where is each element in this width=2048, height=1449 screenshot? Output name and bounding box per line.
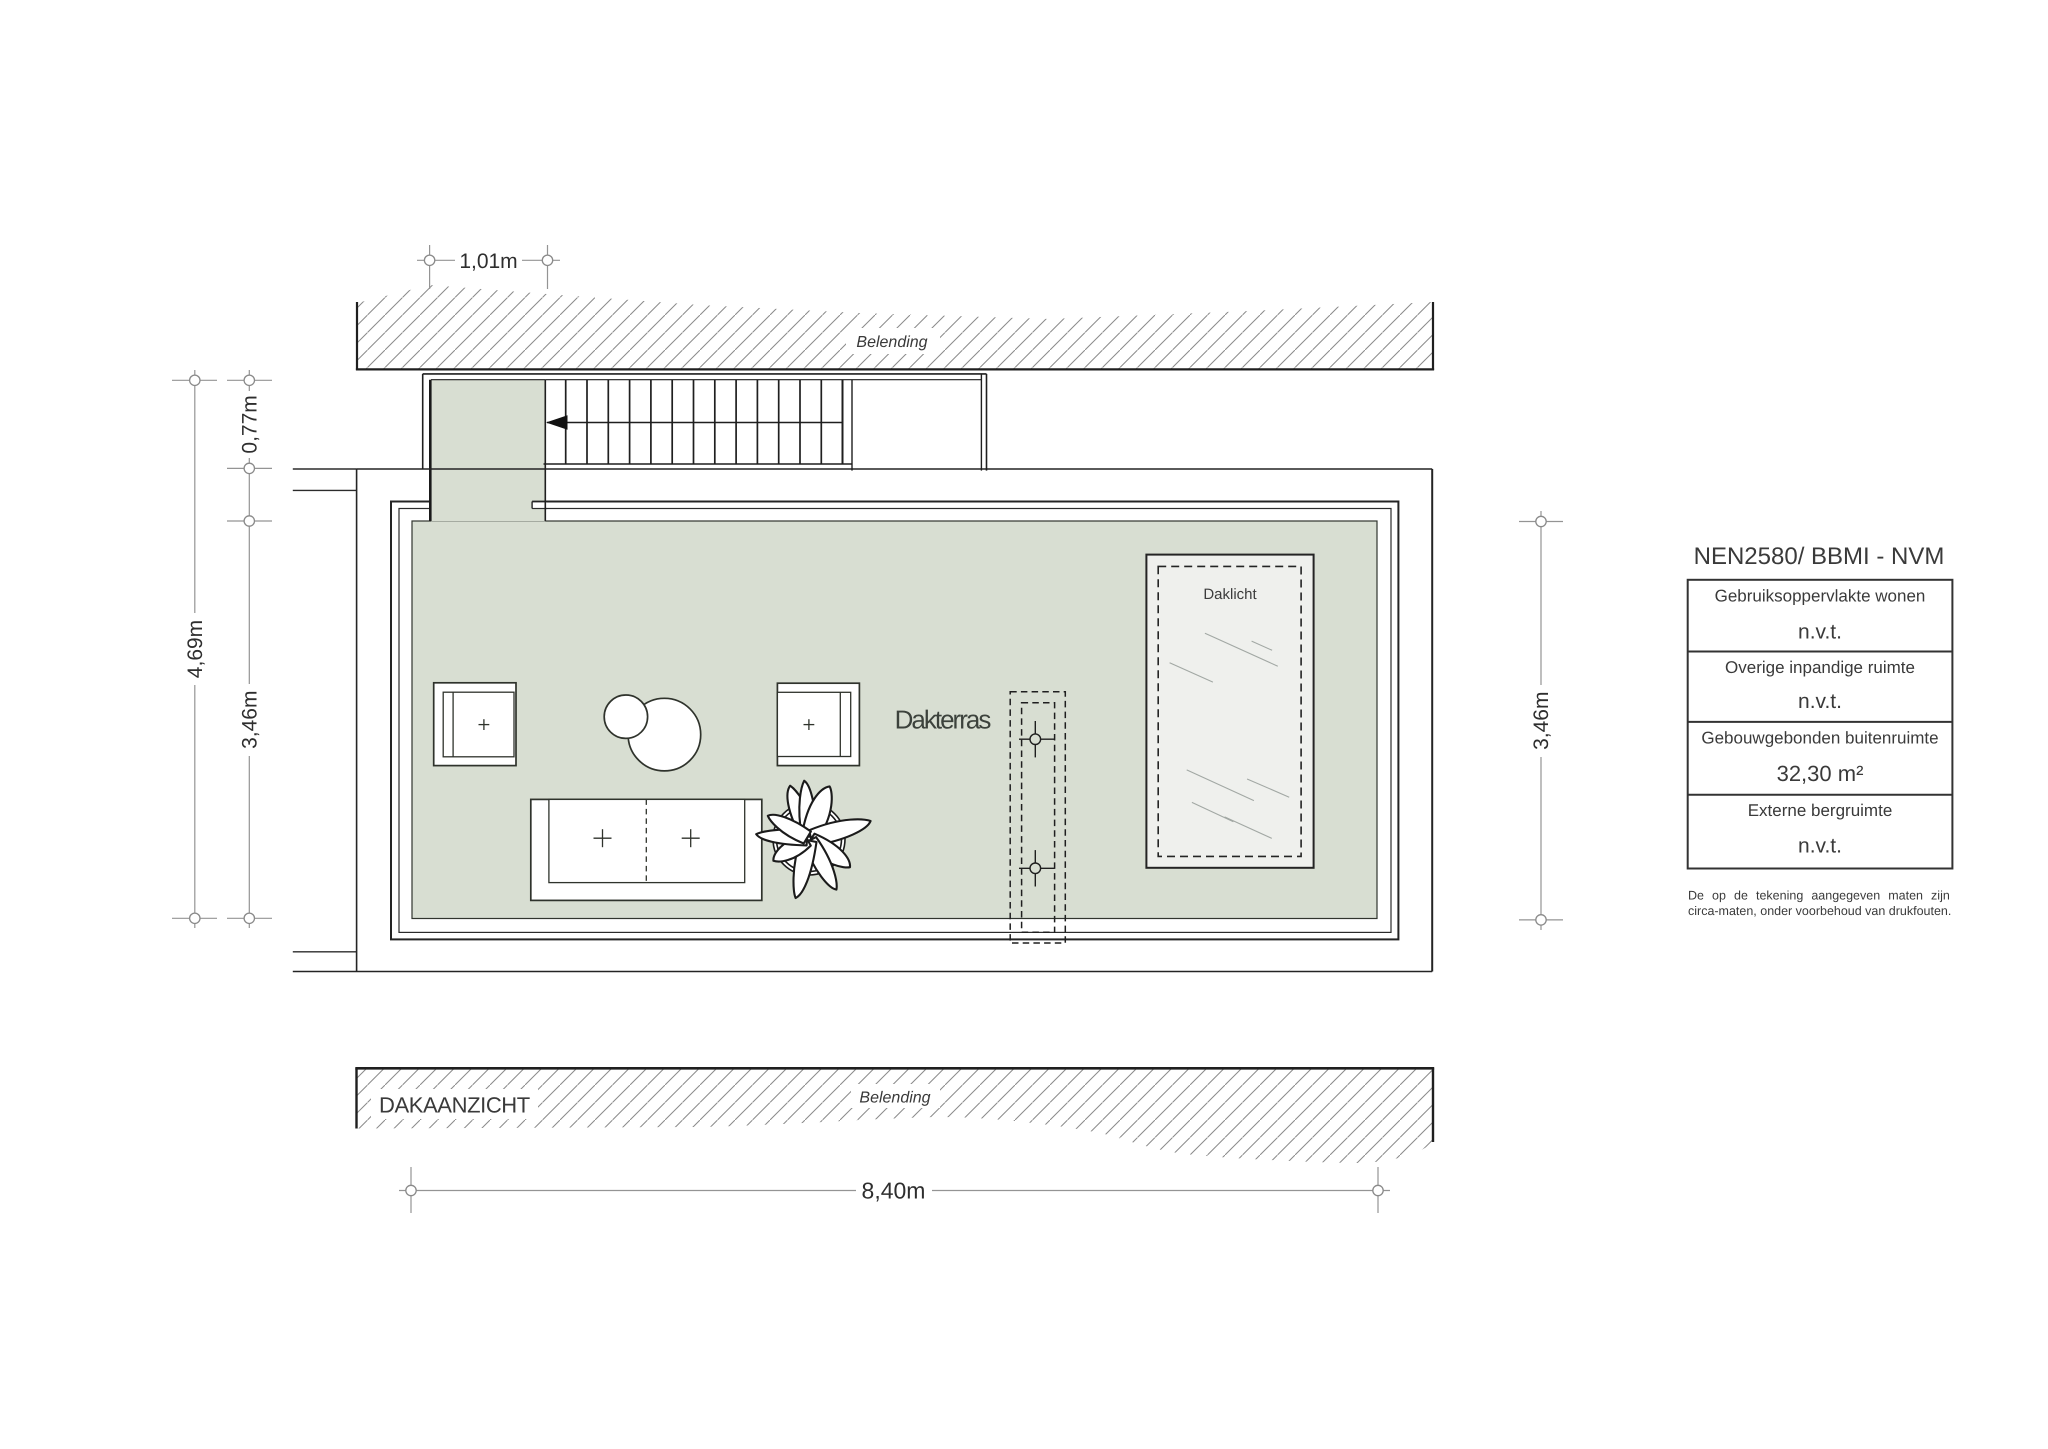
- svg-text:Belending: Belending: [856, 334, 927, 351]
- svg-text:Gebouwgebonden buitenruimte: Gebouwgebonden buitenruimte: [1701, 729, 1938, 748]
- svg-text:Overige inpandige ruimte: Overige inpandige ruimte: [1725, 658, 1915, 677]
- svg-text:Externe bergruimte: Externe bergruimte: [1748, 801, 1893, 820]
- svg-text:32,30 m²: 32,30 m²: [1777, 761, 1864, 786]
- svg-text:n.v.t.: n.v.t.: [1798, 834, 1842, 857]
- svg-text:0,77m: 0,77m: [238, 395, 261, 453]
- svg-text:n.v.t.: n.v.t.: [1798, 620, 1842, 643]
- svg-text:NEN2580/ BBMI - NVM: NEN2580/ BBMI - NVM: [1694, 543, 1945, 570]
- svg-text:n.v.t.: n.v.t.: [1798, 690, 1842, 713]
- svg-text:Gebruiksoppervlakte wonen: Gebruiksoppervlakte wonen: [1715, 587, 1926, 606]
- svg-text:3,46m: 3,46m: [238, 691, 261, 749]
- svg-text:circa-maten, onder voorbehoud: circa-maten, onder voorbehoud van drukfo…: [1688, 904, 1951, 918]
- svg-text:De op de tekening aangegeven m: De op de tekening aangegeven maten zijn: [1688, 889, 1950, 903]
- svg-text:DAKAANZICHT: DAKAANZICHT: [379, 1092, 530, 1117]
- svg-text:Belending: Belending: [859, 1090, 930, 1107]
- svg-text:Daklicht: Daklicht: [1203, 586, 1257, 603]
- svg-text:4,69m: 4,69m: [184, 620, 207, 678]
- svg-text:Dakterras: Dakterras: [895, 704, 992, 734]
- svg-text:1,01m: 1,01m: [459, 250, 517, 273]
- svg-text:3,46m: 3,46m: [1530, 692, 1553, 750]
- svg-text:8,40m: 8,40m: [862, 1178, 926, 1204]
